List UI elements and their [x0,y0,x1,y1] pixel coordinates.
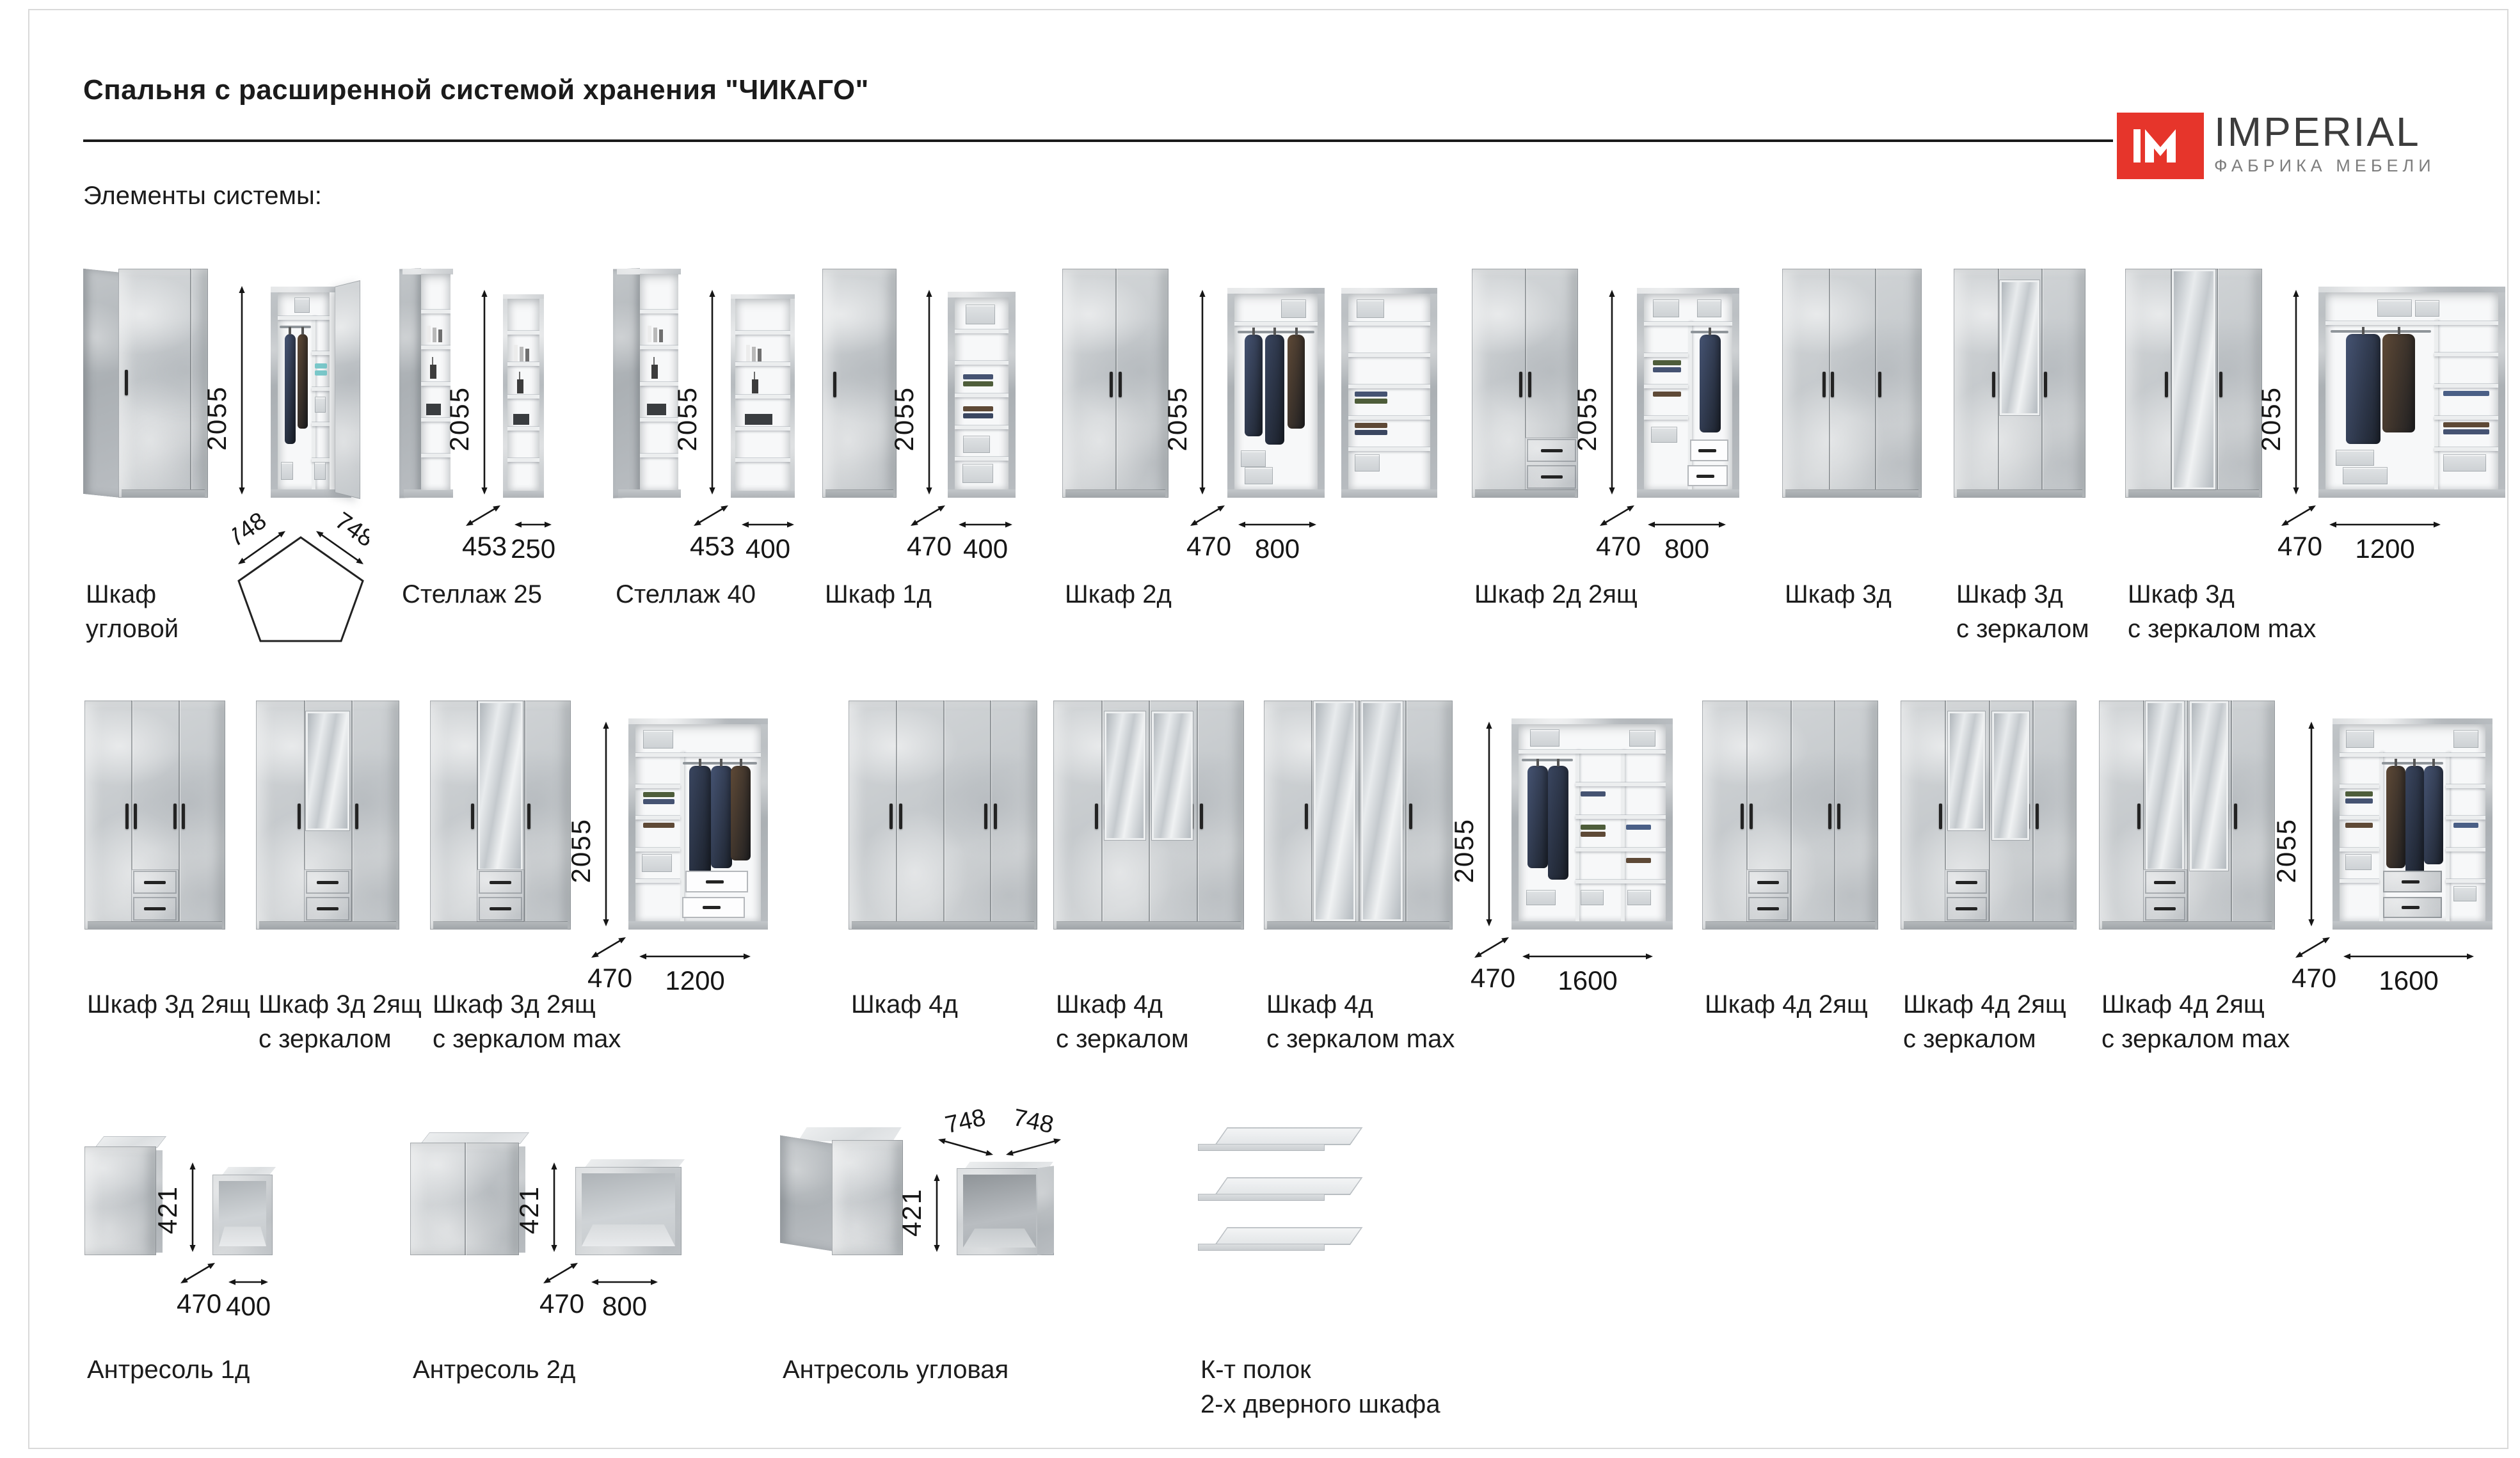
group-label-block: Шкаф 1д [825,577,932,612]
door-gap-line [1311,701,1312,921]
drawer-zone [2143,869,2187,922]
closed-item [1062,269,1168,498]
plinth [122,490,205,498]
coat-silhouette [731,766,751,860]
plinth [1511,921,1673,930]
wardrobe-closed-figure [1901,701,2077,930]
shelf [1644,416,1688,420]
width-dimension: 400 [225,1274,271,1322]
item-label: Шкаф 4д 2ящ [1705,987,1868,1022]
open-item: 470400 [948,269,1016,498]
vdim-item: 2055 [1583,269,1624,498]
height-dimension-value: 421 [152,1185,183,1234]
height-dimension-arrow [2302,718,2321,930]
depth-width-dimensions: 4701600 [1471,932,1656,996]
group-label-block: Шкаф 3д 2ящс зеркалом max [433,987,621,1056]
shelf [2446,848,2485,852]
plinth [2333,921,2492,930]
page-title: Спальня с расширенной системой хранения … [83,74,869,106]
height-dimension-value: 2055 [1162,386,1193,451]
furniture-group: 421470800Антресоль 2д [410,1134,682,1255]
shelf [507,331,539,335]
top-panel [628,718,768,724]
shelf [1348,353,1430,357]
item-label: угловой [86,612,179,646]
drawer-handle [1696,475,1714,478]
wardrobe-open-figure [948,292,1016,498]
plinth [259,922,396,930]
plinth [2318,489,2505,498]
drawer-front [306,897,350,920]
books [746,345,762,361]
width-dimension: 250 [511,517,555,564]
item-label: Шкаф 4д [1056,987,1189,1022]
cabinet-box-open-figure [575,1159,682,1255]
storage-box [962,464,994,483]
width-value: 400 [746,534,790,564]
depth-arrow [1596,500,1641,530]
divider [1688,321,1692,489]
wardrobe-open-figure [2318,287,2505,498]
open-item: 470800 [1637,269,1739,498]
depth-arrow [177,1258,221,1287]
storage-box [1357,299,1385,318]
width-value: 800 [1664,534,1709,564]
folded-clothes [963,406,993,418]
interior [1519,724,1666,921]
persp-item [613,269,681,498]
shell [957,1168,1054,1255]
shelf [312,351,330,355]
dark-box [745,414,772,425]
diffuser [517,379,523,393]
title-divider [83,139,2113,142]
kit-item [1198,1134,1350,1255]
drawer-handle [144,907,166,910]
mirror-panel [1950,713,1984,829]
group-label-block: Шкаф 3д [1785,577,1892,612]
figure-strip: 2055 748 748 [83,269,351,498]
plinth [1341,489,1437,498]
shelf [955,393,1009,397]
shelf [1234,322,1318,326]
height-dimension-arrow [183,1159,202,1255]
plinth [88,922,222,930]
mirror-panel [480,703,520,869]
furniture-group: 2055470400Шкаф 1д [822,269,1016,498]
width-arrow [1235,517,1320,532]
door-gap-line [2187,701,2189,921]
plinth [1705,922,1875,930]
shelf [1575,815,1666,819]
depth-width-dimensions: 470400 [907,500,1016,564]
folded-clothes [2453,823,2478,828]
side-panel [948,292,955,498]
interior [963,1175,1036,1248]
door-gap-line [990,701,991,921]
side-panel [1511,718,1519,930]
door-handle [1831,372,1834,397]
item-label: 2-х дверного шкафа [1200,1387,1440,1422]
door-gap-line [1834,701,1835,921]
furniture-group: 20554701200Шкаф 3д 2ящс зеркалом max [430,701,768,930]
door-handle [134,804,137,829]
top-panel [503,294,544,299]
shelf [1575,782,1666,786]
folded-clothes [1653,360,1681,372]
divider [2379,752,2383,921]
plinth [2102,922,2272,930]
width-value: 250 [511,534,555,564]
shelf [1348,447,1430,451]
furniture-group: 421748748Антресоль угловая [780,1134,1054,1255]
figure-strip: 2055470800 [1472,269,1739,498]
wardrobe-closed-figure [1053,701,1244,930]
plinth [731,491,795,498]
shelf-board-edge [1198,1244,1325,1251]
width-dimension: 1200 [2326,517,2444,564]
closed-item [822,269,897,498]
furniture-group: Шкаф 3д [1782,269,1922,498]
group-label-block: Шкаф 3д 2ящс зеркалом [259,987,422,1056]
shelf [278,316,330,320]
door-handle [2219,372,2222,397]
depth-width-dimensions: 470800 [1596,500,1729,564]
width-arrow [225,1274,271,1290]
width-dimension: 1200 [636,949,754,996]
folded-clothes [1355,423,1387,435]
coat-silhouette [1527,766,1548,868]
plinth [1904,922,2073,930]
depth-arrow [539,1258,584,1287]
door-gap-line [1998,269,1999,489]
angled-face [780,1136,834,1251]
figure-strip [1702,701,1878,930]
box-closed-item [84,1134,163,1255]
group-label-block: Шкаф 4дс зеркалом max [1266,987,1455,1056]
storage-box [281,462,293,480]
door-handle [471,804,474,829]
side-panel [1666,718,1673,930]
door-handle [1878,372,1881,397]
shelf [640,310,678,313]
wardrobe-open-figure [2333,718,2492,930]
door-handle [984,804,987,829]
vdim-item: 421 [170,1134,205,1255]
storage-box [2453,730,2478,748]
section-heading: Элементы системы: [83,182,322,210]
plinth [1475,490,1575,498]
wardrobe-closed-figure [1472,269,1578,498]
item-label: К-т полок [1200,1352,1440,1387]
drawer-handle [2154,907,2176,910]
shelf [507,395,539,399]
folded-clothes [1355,392,1387,404]
top-dimension-left: 748 [935,1108,996,1159]
hanging-rail [280,326,311,328]
interior [507,299,539,491]
door-gap-line [2217,269,2218,489]
dimension-arrow [1003,1136,1064,1159]
item-label: Шкаф [86,577,179,612]
drawer-handle [144,881,166,884]
height-dimension-value: 2055 [202,386,232,450]
coat-silhouette [2424,766,2443,864]
group-label-block: Шкафугловой [86,577,179,646]
door-gap-line [1149,701,1150,921]
door-handle [899,804,902,829]
wardrobe-open-figure [1637,288,1739,498]
item-label: Стеллаж 25 [402,577,542,612]
closed-item [2099,701,2275,930]
interior [421,274,451,490]
folded-clothes [1581,825,1606,837]
folded-clothes [2345,791,2373,804]
depth-width-dimensions: 470800 [539,1258,661,1322]
plinth [1267,922,1449,930]
furniture-group: 2055470800Шкаф 2д [1062,269,1437,498]
corner-wardrobe-open-figure [271,287,351,498]
wardrobe-closed-figure [256,701,399,930]
open-item: 4701600 [1511,701,1673,930]
door-handle [833,372,836,397]
closed-item [1472,269,1578,498]
depth-value: 470 [1596,531,1641,562]
width-arrow [955,517,1016,532]
interior [278,292,330,489]
item-label: Шкаф 4д [851,987,958,1022]
interior [635,724,761,921]
figure-strip: 421748748 [780,1134,1054,1255]
shelf-board-top [1215,1177,1363,1195]
drawer-zone [477,869,523,922]
drawer-handle [2402,906,2420,909]
open-item: 470800 [1227,269,1325,498]
side-panel [539,294,544,498]
folded-clothes [315,363,327,376]
drawer-handle [1757,881,1779,884]
item-label: Шкаф 3д 2ящ [433,987,621,1022]
door-handle [2137,804,2141,829]
brand-logo: IMPERIAL ФАБРИКА МЕБЕЛИ [2117,113,2436,179]
furniture-group: 2055 748 748 Шкафугловой [83,269,351,498]
drawer-front [479,897,522,920]
drawer-handle [317,907,339,910]
height-dimension-arrow [1479,718,1499,930]
wardrobe-closed-figure [2125,269,2262,498]
divider [2446,752,2450,921]
depth-width-dimensions: 4701200 [2277,500,2444,564]
door-handle [1528,372,1531,397]
shelf [735,458,790,462]
wardrobe-open-figure [628,718,768,930]
mirror-panel [308,713,347,829]
depth-value: 453 [462,531,507,562]
shelving-perspective-figure [613,269,681,498]
shelf [2434,447,2498,451]
door-handle [1837,804,1840,829]
depth-value: 470 [539,1288,584,1319]
interior [2325,292,2498,489]
group-label-block: Антресоль 2д [413,1352,575,1387]
item-label: Шкаф 4д 2ящ [1903,987,2066,1022]
side-panel [2485,718,2492,930]
furniture-group: Шкаф 3дс зеркалом [1954,269,2085,498]
vdim-item: 2055 [900,269,941,498]
open-item: 4701200 [2318,269,2505,498]
width-arrow [1519,949,1656,964]
drawer-front [685,871,748,892]
drawer-handle [2402,880,2420,884]
height-dimension-arrow [1602,287,1622,498]
shelf-kit-figure [1198,1127,1350,1263]
cabinet-box-open-figure [212,1167,273,1255]
shell [212,1175,273,1255]
shelf [2446,784,2485,788]
side-panel [271,287,278,498]
door-gap-line [943,701,945,921]
height-dimension-arrow [927,1171,946,1255]
coat-silhouette [1548,766,1568,880]
width-arrow [1645,517,1729,532]
depth-value: 470 [2277,531,2322,562]
side-panel [628,718,635,930]
side-panel [731,294,735,498]
shelf [1575,848,1666,852]
plinth [628,921,768,930]
depth-arrow [2292,932,2336,962]
item-label: с зеркалом max [1266,1022,1455,1056]
furniture-group: Шкаф 4дс зеркалом [1053,701,1244,930]
shelf [2340,879,2379,883]
item-label: Шкаф 3д [1785,577,1892,612]
storage-box [1697,299,1722,317]
coat-silhouette [689,766,710,874]
item-label: Антресоль угловая [783,1352,1009,1387]
books [514,345,529,361]
storage-box [1629,730,1655,747]
side-panel [1341,288,1348,498]
furniture-group: 20554701600Шкаф 4д 2ящс зеркалом max [2099,701,2492,930]
furniture-group: Шкаф 4д 2ящ [1702,701,1878,930]
width-dimension: 800 [1645,517,1729,564]
height-dimension-value: 2055 [2271,818,2302,883]
depth-arrow [690,500,735,530]
depth-width-dimensions: 453400 [690,500,797,564]
shelf [2446,879,2485,883]
folded-clothes [963,374,993,386]
figure-strip: 421470800 [410,1134,682,1255]
height-dimension-arrow [596,718,616,930]
item-label: Антресоль 2д [413,1352,575,1387]
wardrobe-closed-figure [1702,701,1878,930]
storage-box [314,462,326,480]
corner-plan-diagram: 748 748 [232,508,369,646]
vdim-item: 2055 [577,701,618,930]
shelf [635,784,680,788]
drawer-handle [490,881,511,884]
shelf [312,387,330,391]
door-handle [1519,372,1522,397]
shelf [640,382,678,386]
door-gap-line [2032,701,2034,921]
shelf [1348,384,1430,388]
storage-box [294,297,310,313]
divider [2434,320,2438,489]
coat-silhouette [2382,334,2415,432]
top-panel [731,294,795,299]
depth-arrow [1471,932,1515,962]
mirror-panel [2002,282,2038,413]
closed-item [1782,269,1922,498]
shelf [2340,816,2379,820]
floor [219,1226,266,1246]
drawer-handle [703,906,721,909]
shelf [507,362,539,366]
storage-box [2443,454,2487,472]
depth-width-dimensions: 4701600 [2292,932,2477,996]
item-label: Шкаф 4д 2ящ [2101,987,2290,1022]
vdim-item: 2055 [456,269,497,498]
shelf [1519,750,1666,754]
side-panel [613,268,640,498]
door-handle [1750,804,1753,829]
group-label-block: Шкаф 4д 2ящс зеркалом max [2101,987,2290,1056]
wardrobe-open-figure [1341,288,1437,498]
corner-box-closed-item [780,1134,903,1255]
drawer-front [682,897,745,919]
interior [1348,294,1430,489]
top-panel [948,292,1016,297]
door-handle [889,804,893,829]
shelf-board-top [1215,1127,1363,1145]
shelf [955,329,1009,333]
shelf [2434,384,2498,388]
mirror-panel [1316,703,1353,919]
mirror-panel [1154,713,1191,838]
width-value: 1200 [665,965,724,996]
closed-item [1954,269,2085,498]
drawer-handle [1541,475,1563,479]
plinth [618,489,681,498]
shelf [507,458,539,462]
drawer-front [306,871,350,894]
drawer-front [2145,897,2185,920]
group-label-block: Антресоль угловая [783,1352,1009,1387]
height-dimension-value: 2055 [2256,386,2286,451]
shelf [2325,321,2498,325]
shelving-front-figure [731,294,795,498]
drawer-front [133,871,176,894]
group-label-block: Стеллаж 25 [402,577,542,612]
box-open-item: 470800 [575,1134,682,1255]
figure-strip: 20554701600 [2099,701,2492,930]
coat-silhouette [1700,335,1721,432]
drawer-handle [1541,449,1563,452]
door-handle [1939,804,1942,829]
diffuser [651,365,658,379]
shelf [312,422,330,426]
drawer-handle [490,907,511,910]
door-gap-line [1875,269,1876,489]
height-dimension-value: 2055 [1572,386,1602,451]
door-handle [2165,372,2168,397]
door-gap-line [179,701,180,921]
width-arrow [2326,517,2444,532]
drawer-zone [304,869,352,922]
shelf [421,382,451,386]
group-label-block: Антресоль 1д [87,1352,250,1387]
